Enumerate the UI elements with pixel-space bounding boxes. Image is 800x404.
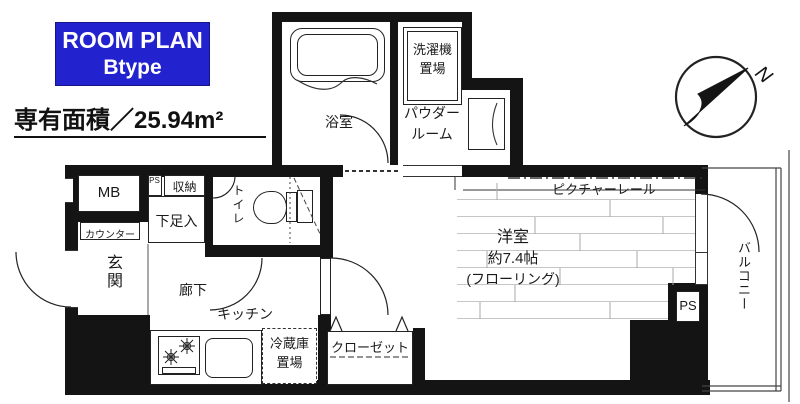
wall: [510, 78, 523, 170]
room-door-leaf: [320, 258, 331, 315]
wall: [695, 165, 708, 194]
shoe-box-label: 下足入: [148, 211, 205, 231]
balcony-door-leaf: [695, 194, 708, 252]
wall: [462, 12, 472, 86]
kitchen-label: キッチン: [208, 304, 282, 324]
toilet-side-cabinet: [297, 190, 313, 223]
balcony-label: バルコニー: [734, 241, 753, 311]
sink: [205, 338, 253, 378]
wall-block: [70, 315, 150, 385]
closet-label: クローゼット: [327, 337, 413, 356]
counter-label: カウンター: [80, 226, 140, 241]
closet-fold-door-triangle: [396, 317, 408, 331]
bath-label: 浴室: [308, 112, 370, 132]
area-label: 専有面積／25.94m²: [14, 100, 266, 138]
plan-name: ROOM PLAN: [56, 27, 209, 54]
wall: [78, 212, 140, 222]
toilet-bowl: [253, 191, 287, 224]
meter-box-label: MB: [78, 184, 140, 201]
powder-room-label: パウダー ルーム: [392, 103, 472, 145]
floor-plan: ROOM PLAN Btype 専有面積／25.94m²: [0, 0, 800, 404]
stove-grill: [162, 367, 196, 374]
wall: [205, 165, 213, 257]
entrance-label: 玄関: [100, 254, 124, 290]
wall: [140, 175, 148, 222]
compass-icon: N: [676, 57, 777, 137]
mb-vent-opening: [65, 178, 73, 203]
toilet-label: トイレ: [230, 184, 247, 226]
wall-block: [630, 320, 708, 390]
entrance-door-opening: [65, 250, 78, 308]
laundry-label: 洗濯機 置場: [407, 40, 458, 78]
entrance-door-arc: [16, 252, 71, 307]
pipe-space-left-label: PS: [149, 176, 160, 185]
washbasin: [468, 98, 505, 150]
wall: [272, 12, 472, 22]
picture-rail-label: ピクチャーレール: [546, 179, 662, 198]
fridge-label: 冷蔵庫 置場: [262, 334, 317, 372]
storage-label: 収納: [164, 178, 205, 195]
compass-north-label: N: [751, 62, 777, 88]
pipe-space-right-label: PS: [676, 298, 700, 313]
wall: [205, 245, 333, 257]
plan-type-badge: ROOM PLAN Btype: [55, 22, 210, 86]
balcony-window: [695, 252, 708, 285]
bath-door-sill: [343, 165, 403, 177]
closet-fold-door-triangle: [330, 317, 342, 331]
room-door-arc: [331, 258, 388, 315]
wall: [462, 165, 708, 177]
plan-type: Btype: [56, 54, 209, 81]
bathtub-inner: [297, 34, 378, 76]
wall: [272, 12, 282, 165]
toilet-tank: [286, 192, 297, 222]
powder-room-opening: [403, 165, 462, 177]
hall-door-arc: [210, 258, 262, 310]
western-room-label: 洋室 約7.4帖 (フローリング): [443, 227, 583, 290]
hallway-label: 廊下: [170, 280, 216, 300]
